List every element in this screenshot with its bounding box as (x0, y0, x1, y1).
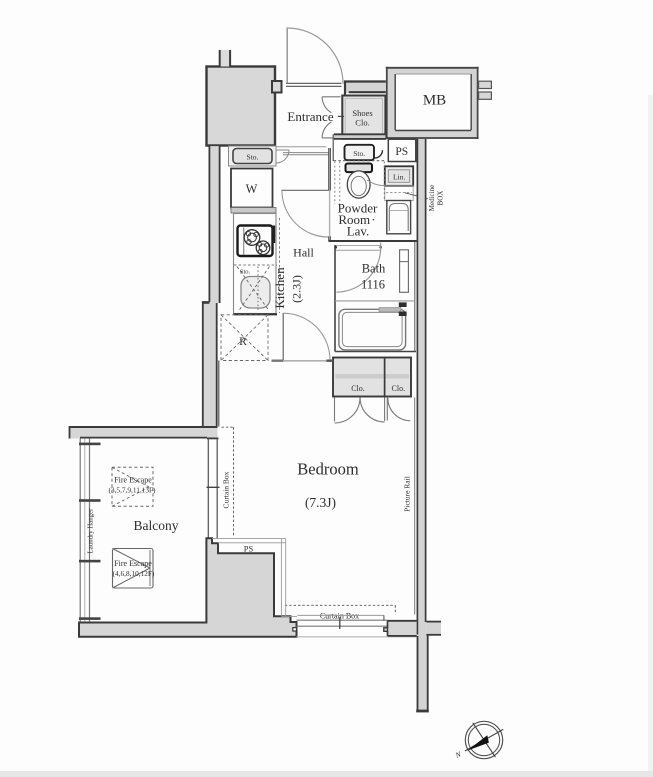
svg-text:Medicine: Medicine (428, 185, 436, 211)
svg-text:Balcony: Balcony (134, 518, 179, 533)
svg-text:(2.3J): (2.3J) (290, 275, 304, 303)
svg-text:W: W (246, 182, 258, 196)
svg-text:(7.3J): (7.3J) (305, 495, 336, 510)
svg-text:Hall: Hall (293, 246, 314, 260)
svg-text:1116: 1116 (361, 278, 385, 292)
svg-text:Fire Escape: Fire Escape (114, 559, 152, 568)
svg-text:Entrance: Entrance (287, 109, 333, 124)
svg-text:(4,6,8,10,12F): (4,6,8,10,12F) (113, 569, 155, 578)
svg-text:Bath: Bath (362, 262, 386, 276)
svg-text:Sto.: Sto. (353, 149, 365, 158)
svg-text:Shoes: Shoes (352, 108, 372, 118)
svg-text:(3,5,7,9,11,13F): (3,5,7,9,11,13F) (109, 486, 157, 495)
svg-text:Clo.: Clo. (351, 384, 365, 393)
svg-text:Picture Rail: Picture Rail (403, 476, 412, 512)
svg-text:Kitchen: Kitchen (272, 267, 287, 309)
svg-text:Clo.: Clo. (355, 118, 369, 128)
svg-text:R: R (239, 336, 247, 348)
svg-text:Lav.: Lav. (347, 224, 370, 239)
svg-text:PS: PS (244, 544, 254, 554)
svg-text:Curtain Box: Curtain Box (222, 471, 231, 508)
svg-text:Clo.: Clo. (392, 384, 406, 393)
svg-text:MB: MB (423, 93, 446, 109)
svg-text:Laundry Hanger: Laundry Hanger (88, 508, 95, 553)
svg-text:PS: PS (395, 146, 408, 158)
svg-text:Bedroom: Bedroom (297, 460, 359, 479)
svg-text:Lin.: Lin. (393, 173, 405, 182)
svg-text:Sto.: Sto. (247, 153, 259, 162)
svg-text:Fire Escape: Fire Escape (114, 476, 152, 485)
svg-text:BOX: BOX (437, 191, 445, 206)
